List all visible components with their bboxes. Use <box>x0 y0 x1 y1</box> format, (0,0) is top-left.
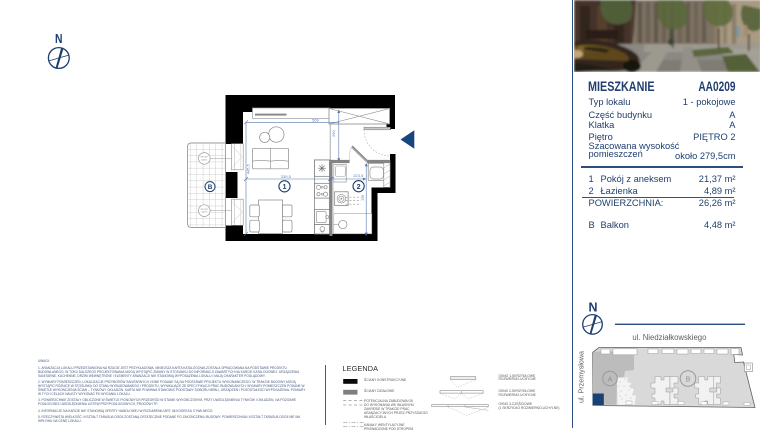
svg-text:N: N <box>55 31 63 46</box>
svg-text:N: N <box>589 299 598 314</box>
svg-text:B: B <box>208 184 213 191</box>
svg-text:2: 2 <box>357 182 361 191</box>
svg-text:339,5: 339,5 <box>281 174 292 179</box>
svg-text:223,5: 223,5 <box>353 173 364 178</box>
svg-text:ul. Przemysłowa: ul. Przemysłowa <box>577 350 586 403</box>
svg-text:WPUST: WPUST <box>201 209 209 211</box>
svg-text:DACH.: DACH. <box>201 211 208 214</box>
svg-text:290: 290 <box>331 129 336 136</box>
svg-text:569: 569 <box>312 117 319 122</box>
svg-text:ul. Niedziałkowskiego: ul. Niedziałkowskiego <box>632 333 707 342</box>
svg-text:445,5: 445,5 <box>246 163 251 174</box>
svg-text:238: 238 <box>361 195 365 201</box>
svg-text:B: B <box>686 376 691 383</box>
svg-text:A: A <box>608 376 613 383</box>
svg-text:1: 1 <box>283 182 287 191</box>
svg-text:WPUST: WPUST <box>201 157 209 159</box>
svg-text:DACH.: DACH. <box>201 158 208 161</box>
